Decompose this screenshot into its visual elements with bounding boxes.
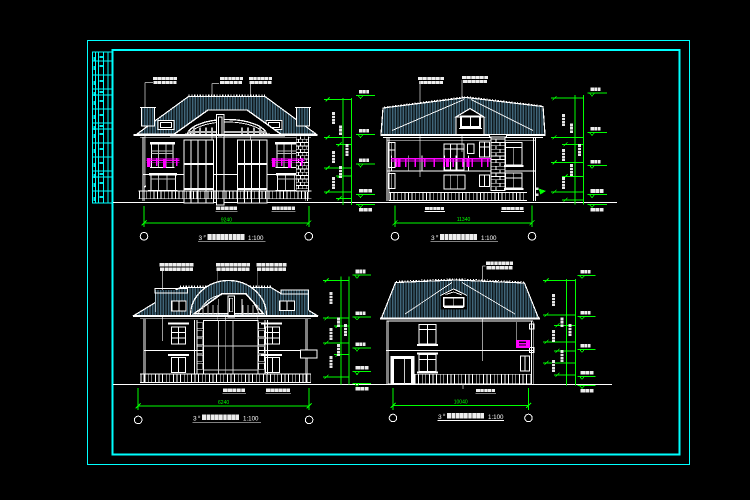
svg-text:1:100: 1:100	[248, 235, 264, 242]
svg-text:3: 3	[199, 235, 203, 242]
svg-text:6240: 6240	[218, 400, 229, 406]
svg-text:3: 3	[438, 414, 442, 421]
svg-text:9240: 9240	[221, 218, 232, 224]
svg-text:1:100: 1:100	[243, 416, 259, 423]
svg-text:3: 3	[193, 416, 197, 423]
svg-text:11340: 11340	[457, 217, 471, 223]
svg-text:3: 3	[431, 235, 435, 242]
svg-text:10040: 10040	[454, 400, 468, 406]
svg-text:1:100: 1:100	[481, 235, 497, 242]
svg-text:1:100: 1:100	[488, 414, 504, 421]
